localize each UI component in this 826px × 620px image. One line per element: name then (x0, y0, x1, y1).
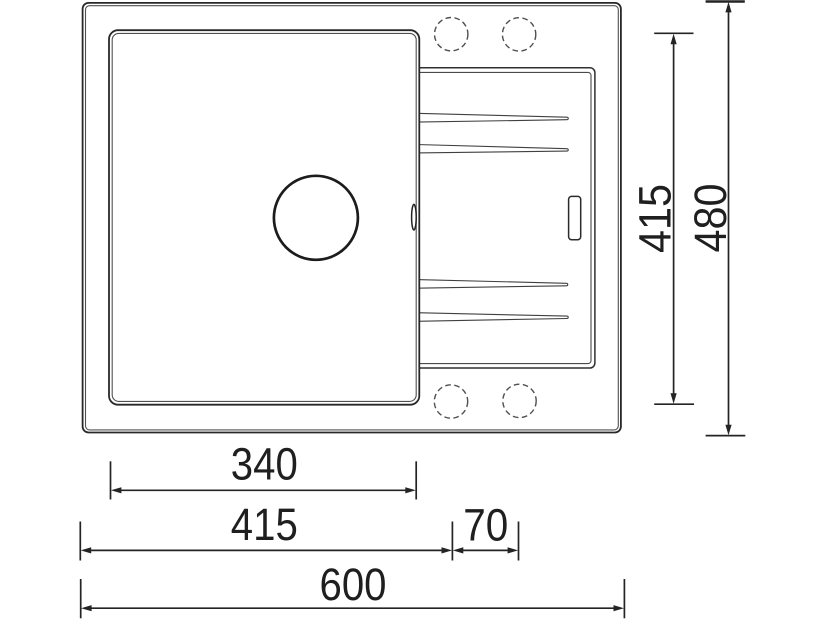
svg-text:480: 480 (685, 184, 736, 253)
svg-text:70: 70 (463, 499, 508, 550)
svg-text:340: 340 (231, 439, 298, 490)
svg-text:415: 415 (630, 184, 681, 253)
svg-text:600: 600 (320, 559, 387, 610)
svg-text:415: 415 (231, 499, 298, 550)
